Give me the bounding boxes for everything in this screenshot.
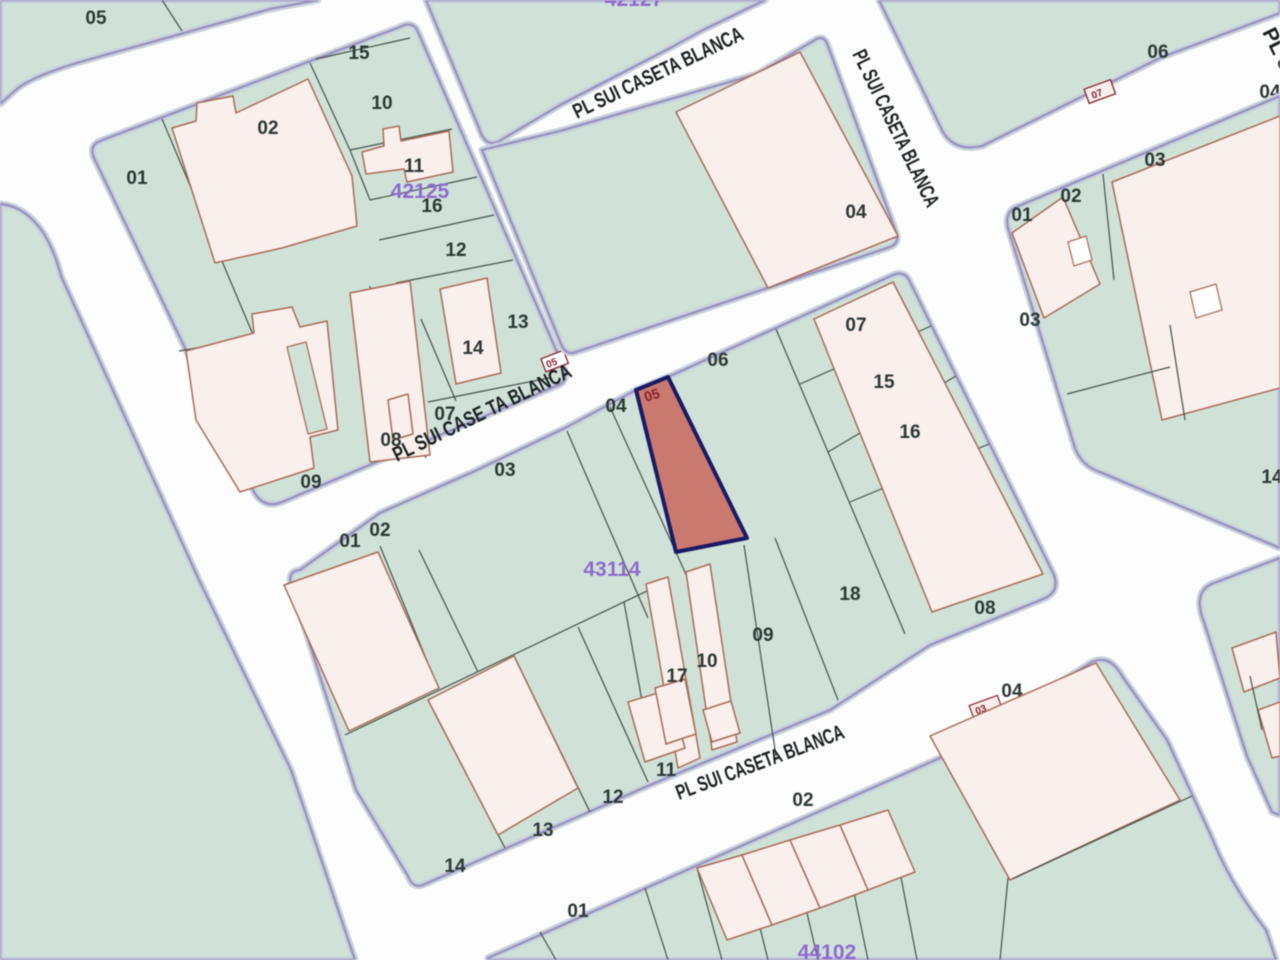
svg-text:14: 14: [1261, 467, 1280, 488]
svg-text:14: 14: [444, 856, 466, 877]
svg-text:07: 07: [845, 315, 866, 336]
svg-text:02: 02: [369, 520, 390, 541]
svg-text:04: 04: [845, 202, 867, 223]
svg-text:02: 02: [257, 118, 278, 139]
svg-text:13: 13: [532, 820, 553, 841]
svg-text:01: 01: [339, 531, 361, 552]
svg-text:09: 09: [752, 625, 773, 646]
svg-text:06: 06: [707, 350, 728, 371]
svg-text:10: 10: [371, 93, 392, 114]
svg-text:44102: 44102: [798, 941, 856, 960]
svg-text:16: 16: [899, 422, 920, 443]
svg-text:03: 03: [1144, 150, 1165, 171]
svg-text:03: 03: [1019, 310, 1040, 331]
svg-text:02: 02: [1060, 186, 1081, 207]
svg-text:12: 12: [445, 240, 466, 261]
svg-text:01: 01: [126, 168, 148, 189]
svg-text:10: 10: [696, 651, 717, 672]
svg-text:03: 03: [494, 460, 515, 481]
svg-text:12: 12: [602, 787, 623, 808]
svg-text:15: 15: [348, 43, 370, 64]
svg-text:11: 11: [404, 156, 425, 177]
svg-text:42125: 42125: [391, 180, 450, 203]
svg-text:13: 13: [507, 312, 528, 333]
svg-text:01: 01: [567, 901, 589, 922]
svg-text:43114: 43114: [583, 558, 641, 581]
svg-text:09: 09: [300, 472, 321, 493]
svg-text:02: 02: [792, 790, 813, 811]
svg-text:14: 14: [462, 338, 484, 359]
svg-text:05: 05: [85, 8, 107, 29]
svg-text:11: 11: [656, 760, 677, 781]
svg-text:06: 06: [1147, 42, 1168, 63]
svg-text:18: 18: [839, 584, 860, 605]
svg-text:08: 08: [974, 598, 995, 619]
svg-text:01: 01: [1011, 205, 1033, 226]
svg-text:04: 04: [605, 396, 627, 417]
svg-text:15: 15: [873, 372, 895, 393]
svg-text:42127: 42127: [605, 0, 663, 11]
svg-text:17: 17: [666, 666, 687, 687]
